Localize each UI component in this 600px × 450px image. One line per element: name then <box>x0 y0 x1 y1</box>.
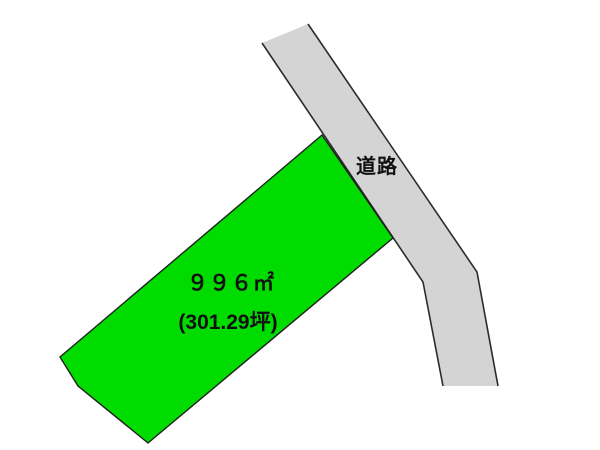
road-label: 道路 <box>356 154 398 178</box>
parcel-area-m2-label: ９９６㎡ <box>187 271 275 295</box>
parcel-area-tsubo-label: (301.29坪) <box>178 311 277 334</box>
site-plan-canvas: 道路 ９９６㎡ (301.29坪) <box>0 0 600 450</box>
site-plan-drawing: 道路 ９９６㎡ (301.29坪) <box>0 0 600 450</box>
land-parcel: ９９６㎡ (301.29坪) <box>60 135 393 443</box>
